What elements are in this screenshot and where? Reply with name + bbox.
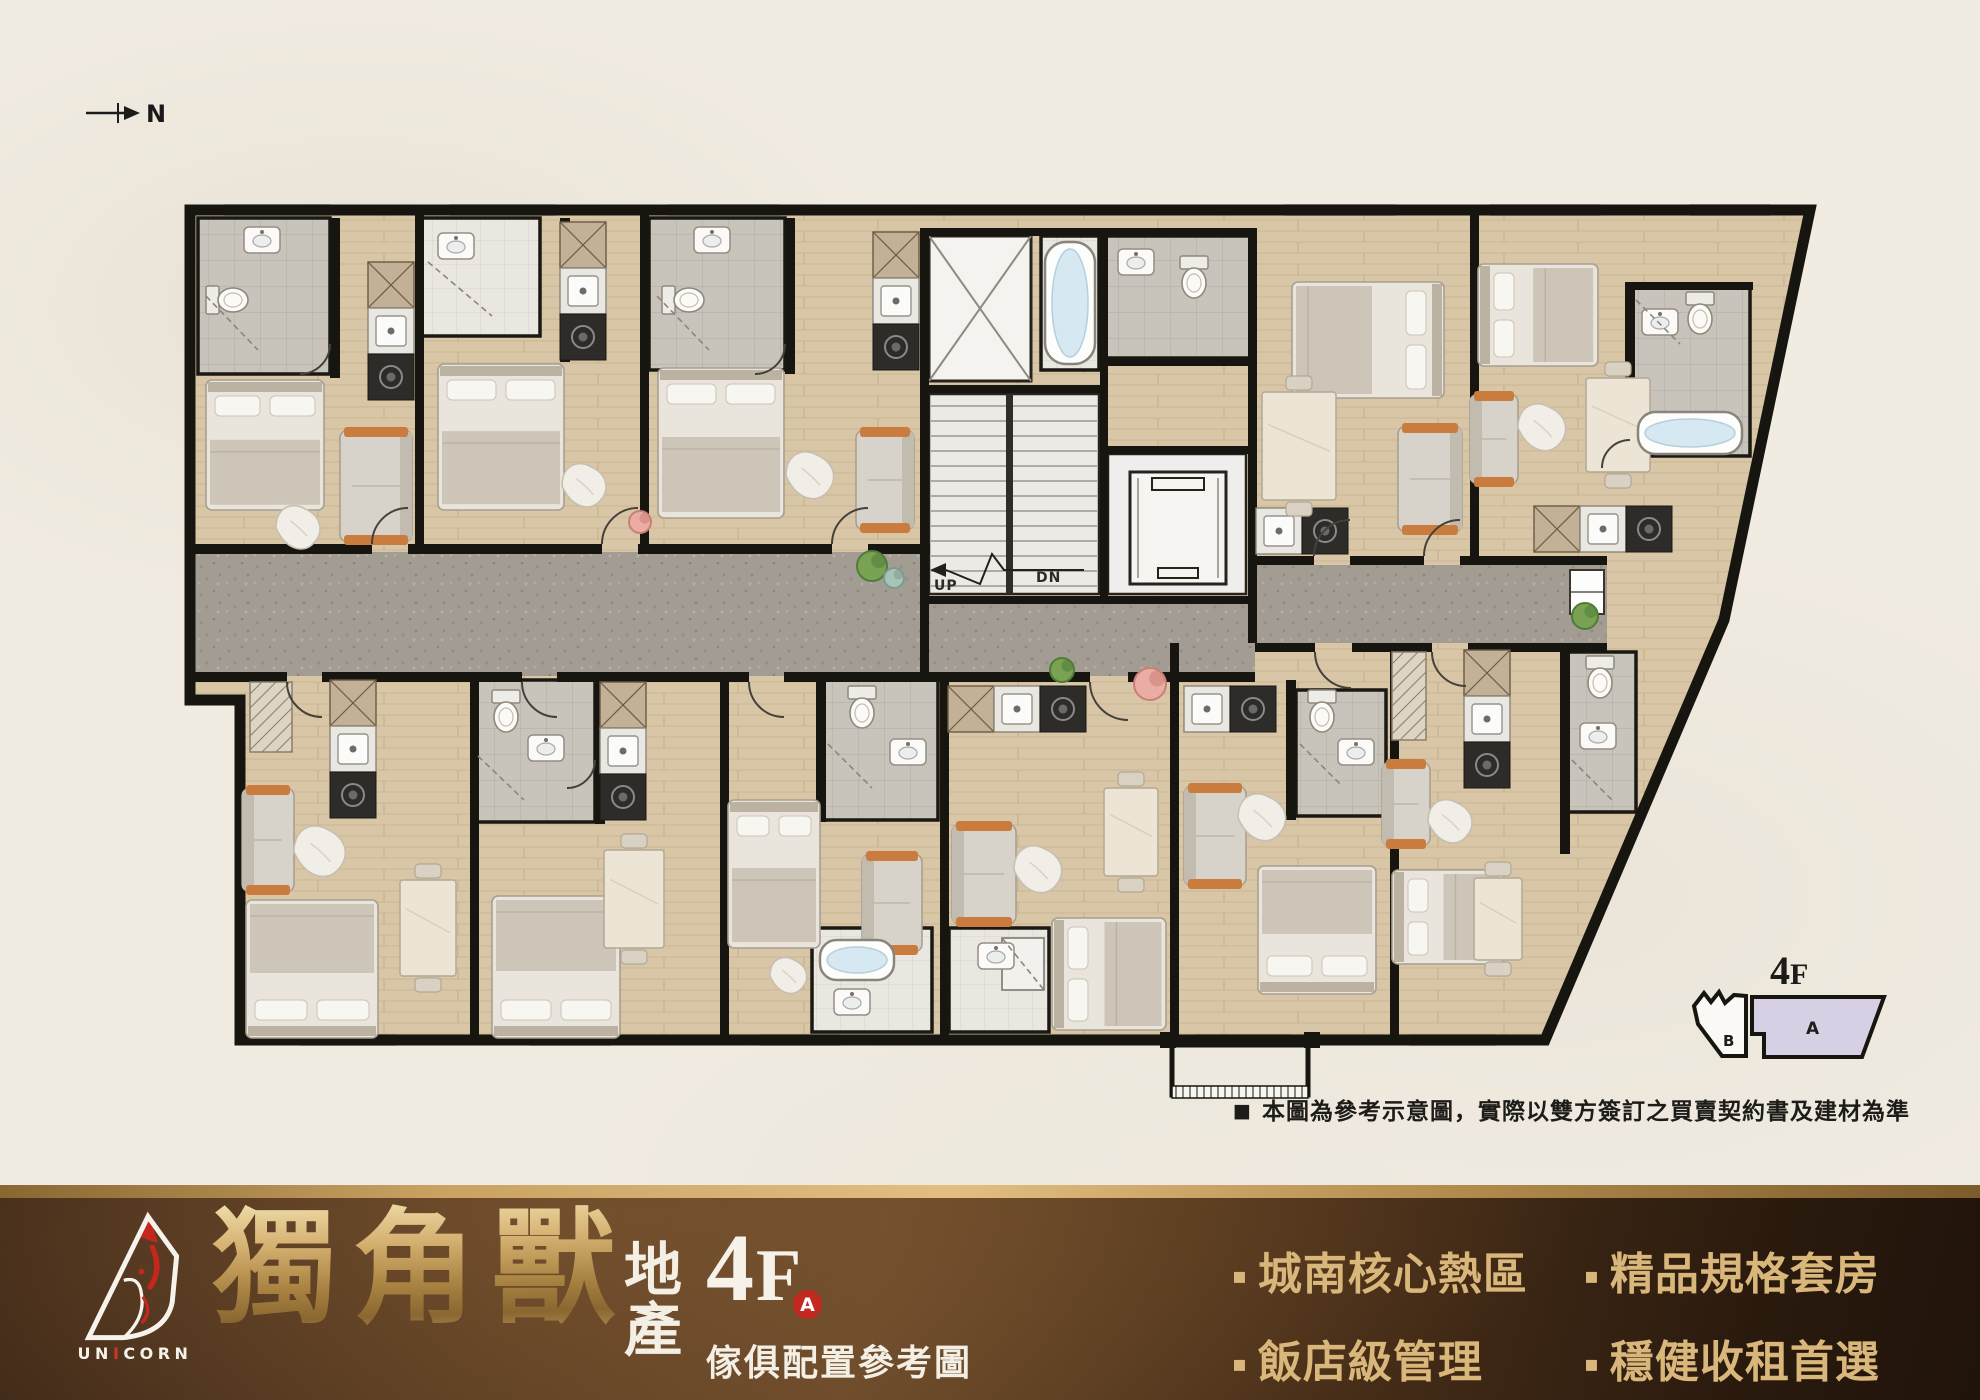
bed xyxy=(246,900,378,1038)
sink xyxy=(244,227,280,253)
sink xyxy=(694,227,730,253)
floor-plan-canvas: N UP DN 4F A B xyxy=(0,0,1980,1185)
plant xyxy=(1134,668,1166,700)
sofa xyxy=(1470,391,1518,487)
toilet xyxy=(662,286,704,314)
bed xyxy=(1052,918,1166,1030)
bullet-square-icon: ▪ xyxy=(1584,1352,1600,1377)
sofa xyxy=(952,821,1016,927)
plant xyxy=(857,551,887,581)
stair-down-label: DN xyxy=(1036,570,1061,586)
selling-point: ▪城南核心熱區 xyxy=(1232,1238,1584,1302)
selling-points: ▪城南核心熱區▪精品規格套房▪飯店級管理▪穩健收租首選 xyxy=(1232,1238,1936,1390)
sofa xyxy=(242,785,294,895)
kitchen-sink xyxy=(330,726,376,772)
toilet xyxy=(1180,256,1208,298)
plant xyxy=(884,568,904,588)
kitchen-stove xyxy=(873,324,919,370)
north-label: N xyxy=(146,100,166,128)
sofa xyxy=(1184,783,1246,889)
bed xyxy=(206,380,324,510)
kitchen-stove xyxy=(1040,686,1086,732)
brand-banner: UNICORN 獨角獸 地 產 4F A 傢俱配置參考圖 ▪城南核心熱區▪精品規… xyxy=(0,1185,1980,1400)
plant xyxy=(1050,658,1074,682)
sink xyxy=(1118,249,1154,275)
kitchen-sink xyxy=(994,686,1040,732)
kitchen-stove xyxy=(1230,686,1276,732)
balcony xyxy=(1172,1045,1308,1098)
dining-table xyxy=(1104,772,1158,892)
brand-title: 獨角獸 xyxy=(212,1194,632,1344)
north-indicator: N xyxy=(86,100,166,128)
toilet xyxy=(1586,656,1614,698)
closet xyxy=(250,682,292,752)
bed xyxy=(492,896,620,1038)
toilet xyxy=(848,686,876,728)
kitchen-stove xyxy=(560,314,606,360)
kitchen-cabinet xyxy=(1534,506,1580,552)
elevator xyxy=(1108,454,1246,594)
toilet xyxy=(1308,690,1336,732)
stair-up-label: UP xyxy=(934,578,958,594)
sink xyxy=(528,735,564,761)
floor-plan xyxy=(190,205,1810,1098)
selling-point: ▪精品規格套房 xyxy=(1584,1238,1936,1302)
bullet-square-icon: ▪ xyxy=(1584,1264,1600,1289)
dining-table xyxy=(1474,862,1522,976)
kitchen-cabinet xyxy=(873,232,919,278)
sink xyxy=(1338,739,1374,765)
bullet-square-icon: ▪ xyxy=(1232,1264,1248,1289)
bed xyxy=(658,368,784,518)
bed xyxy=(1478,264,1598,366)
toilet xyxy=(492,690,520,732)
bathtub xyxy=(1045,242,1095,364)
floor-title: 4F xyxy=(706,1212,801,1323)
sink xyxy=(1580,723,1616,749)
kitchen-cabinet xyxy=(560,222,606,268)
sofa xyxy=(856,427,914,533)
disclaimer-square-icon: ■ xyxy=(1233,1100,1252,1122)
kitchen-stove xyxy=(1464,742,1510,788)
keyplan-floor-label: 4F xyxy=(1770,948,1808,993)
bed xyxy=(438,364,564,510)
brand-wordmark: UNICORN xyxy=(70,1344,200,1363)
kitchen-sink xyxy=(560,268,606,314)
sofa xyxy=(1398,423,1462,535)
kitchen-sink xyxy=(600,728,646,774)
unicorn-logo-icon xyxy=(82,1210,192,1342)
toilet xyxy=(1686,292,1714,334)
kitchen-stove xyxy=(600,774,646,820)
kitchen-sink xyxy=(873,278,919,324)
keyplan-unit-b-shape xyxy=(1694,992,1746,1056)
plant xyxy=(629,511,651,533)
banner-body: UNICORN 獨角獸 地 產 4F A 傢俱配置參考圖 ▪城南核心熱區▪精品規… xyxy=(0,1198,1980,1400)
kitchen-cabinet xyxy=(368,262,414,308)
selling-point: ▪飯店級管理 xyxy=(1232,1326,1584,1390)
kitchen-sink xyxy=(368,308,414,354)
disclaimer-text: 本圖為參考示意圖，實際以雙方簽訂之買賣契約書及建材為準 xyxy=(1262,1099,1910,1125)
toilet xyxy=(206,286,248,314)
kitchen-stove xyxy=(330,772,376,818)
bed xyxy=(1292,282,1444,398)
bed xyxy=(728,800,820,948)
bathtub xyxy=(1638,412,1742,454)
dining-table xyxy=(1262,376,1336,516)
disclaimer-note: ■本圖為參考示意圖，實際以雙方簽訂之買賣契約書及建材為準 xyxy=(1233,1092,1910,1126)
kitchen-sink xyxy=(1580,506,1626,552)
plant xyxy=(1572,603,1598,629)
kitchen-sink xyxy=(1184,686,1230,732)
kitchen-stove xyxy=(368,354,414,400)
sink xyxy=(834,989,870,1015)
kitchen-cabinet xyxy=(1464,650,1510,696)
brochure-page: N UP DN 4F A B ■本圖為參考示意圖，實際以雙方簽訂之買賣契約書及建… xyxy=(0,0,1980,1400)
kitchen-stove xyxy=(1626,506,1672,552)
keyplan-unit-a-label: A xyxy=(1806,1019,1820,1039)
banner-caption: 傢俱配置參考圖 xyxy=(706,1334,972,1386)
key-plan: 4F A B xyxy=(1694,948,1884,1057)
kitchen-cabinet xyxy=(948,686,994,732)
sink xyxy=(1642,309,1678,335)
brand-suffix: 地 產 xyxy=(624,1240,682,1360)
keyplan-unit-b-label: B xyxy=(1723,1032,1734,1050)
staircase xyxy=(929,394,1099,594)
kitchen-cabinet xyxy=(330,680,376,726)
dining-table xyxy=(400,864,456,992)
shaft xyxy=(929,236,1031,381)
unit-a-badge: A xyxy=(793,1290,822,1319)
bullet-square-icon: ▪ xyxy=(1232,1352,1248,1377)
kitchen-sink xyxy=(1464,696,1510,742)
selling-point: ▪穩健收租首選 xyxy=(1584,1326,1936,1390)
kitchen-cabinet xyxy=(600,682,646,728)
sink xyxy=(438,233,474,259)
dining-table xyxy=(604,834,664,964)
bathtub xyxy=(820,940,894,980)
sink xyxy=(890,739,926,765)
north-arrow-icon xyxy=(124,106,140,120)
closet xyxy=(1392,652,1426,740)
sofa xyxy=(1382,759,1430,849)
bed xyxy=(1258,866,1376,994)
